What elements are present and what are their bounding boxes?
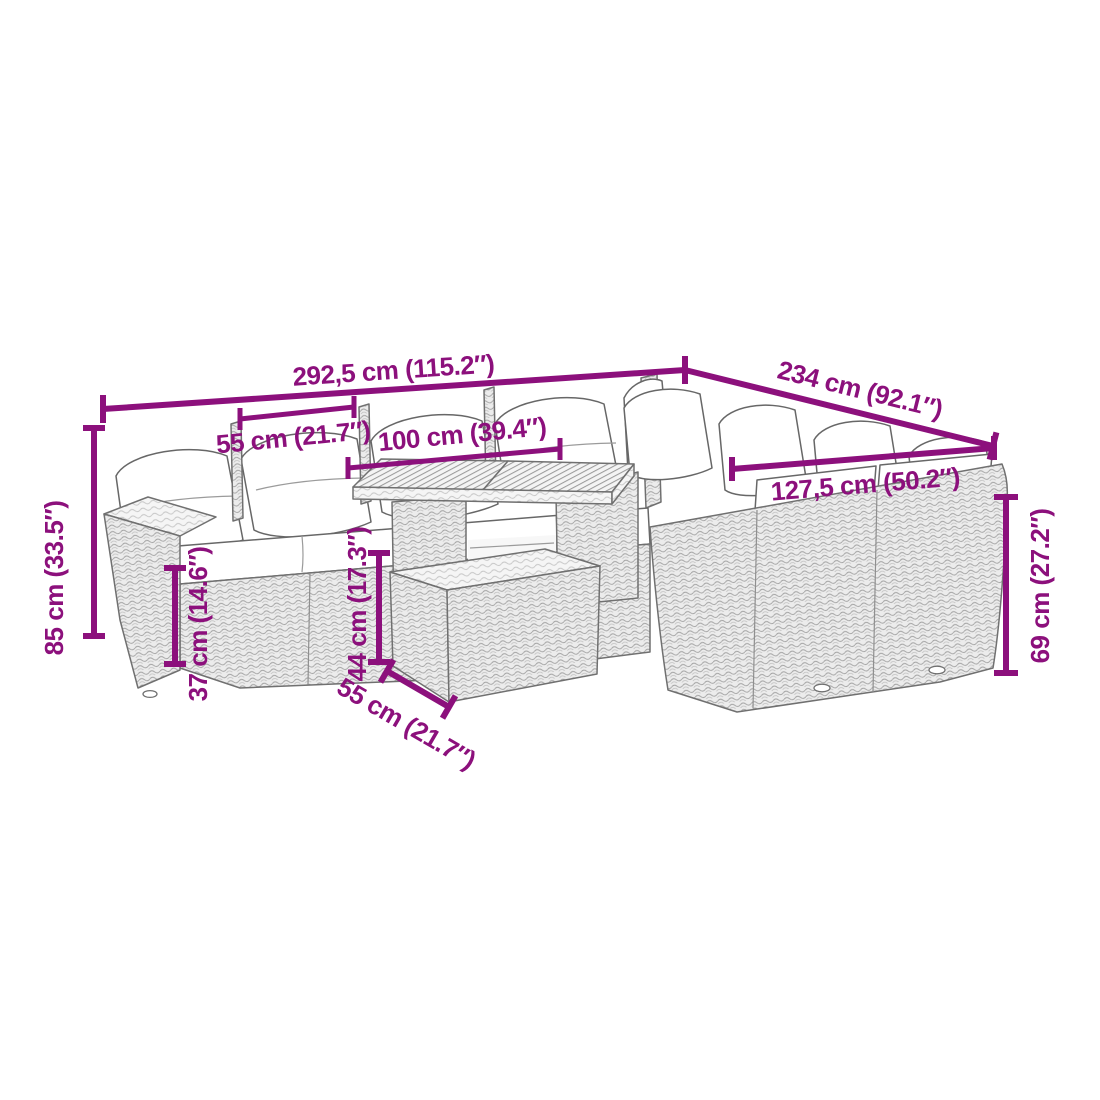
dim-overall-height: 85 cm (33.5″) xyxy=(39,428,105,655)
footstool xyxy=(390,549,600,702)
footstool-side xyxy=(447,566,600,702)
dim-seat-height-label: 37 cm (14.6″) xyxy=(183,547,213,702)
footstool-front xyxy=(390,572,449,702)
back-cushion xyxy=(624,389,712,479)
sofa-foot xyxy=(143,691,157,698)
sofa-foot xyxy=(814,684,830,692)
table-top-slats-right xyxy=(483,461,634,492)
product-dimension-diagram: 292,5 cm (115.2″) 234 cm (92.1″) 55 cm (… xyxy=(0,0,1100,1100)
dim-backrest-height: 69 cm (27.2″) xyxy=(994,497,1055,673)
dim-backrest-height-label: 69 cm (27.2″) xyxy=(1025,509,1055,664)
sofa-foot xyxy=(929,666,945,674)
dim-overall-height-label: 85 cm (33.5″) xyxy=(39,501,69,656)
dim-table-height-label: 44 cm (17.3″) xyxy=(342,527,372,682)
diagram-canvas: 292,5 cm (115.2″) 234 cm (92.1″) 55 cm (… xyxy=(0,0,1100,1100)
